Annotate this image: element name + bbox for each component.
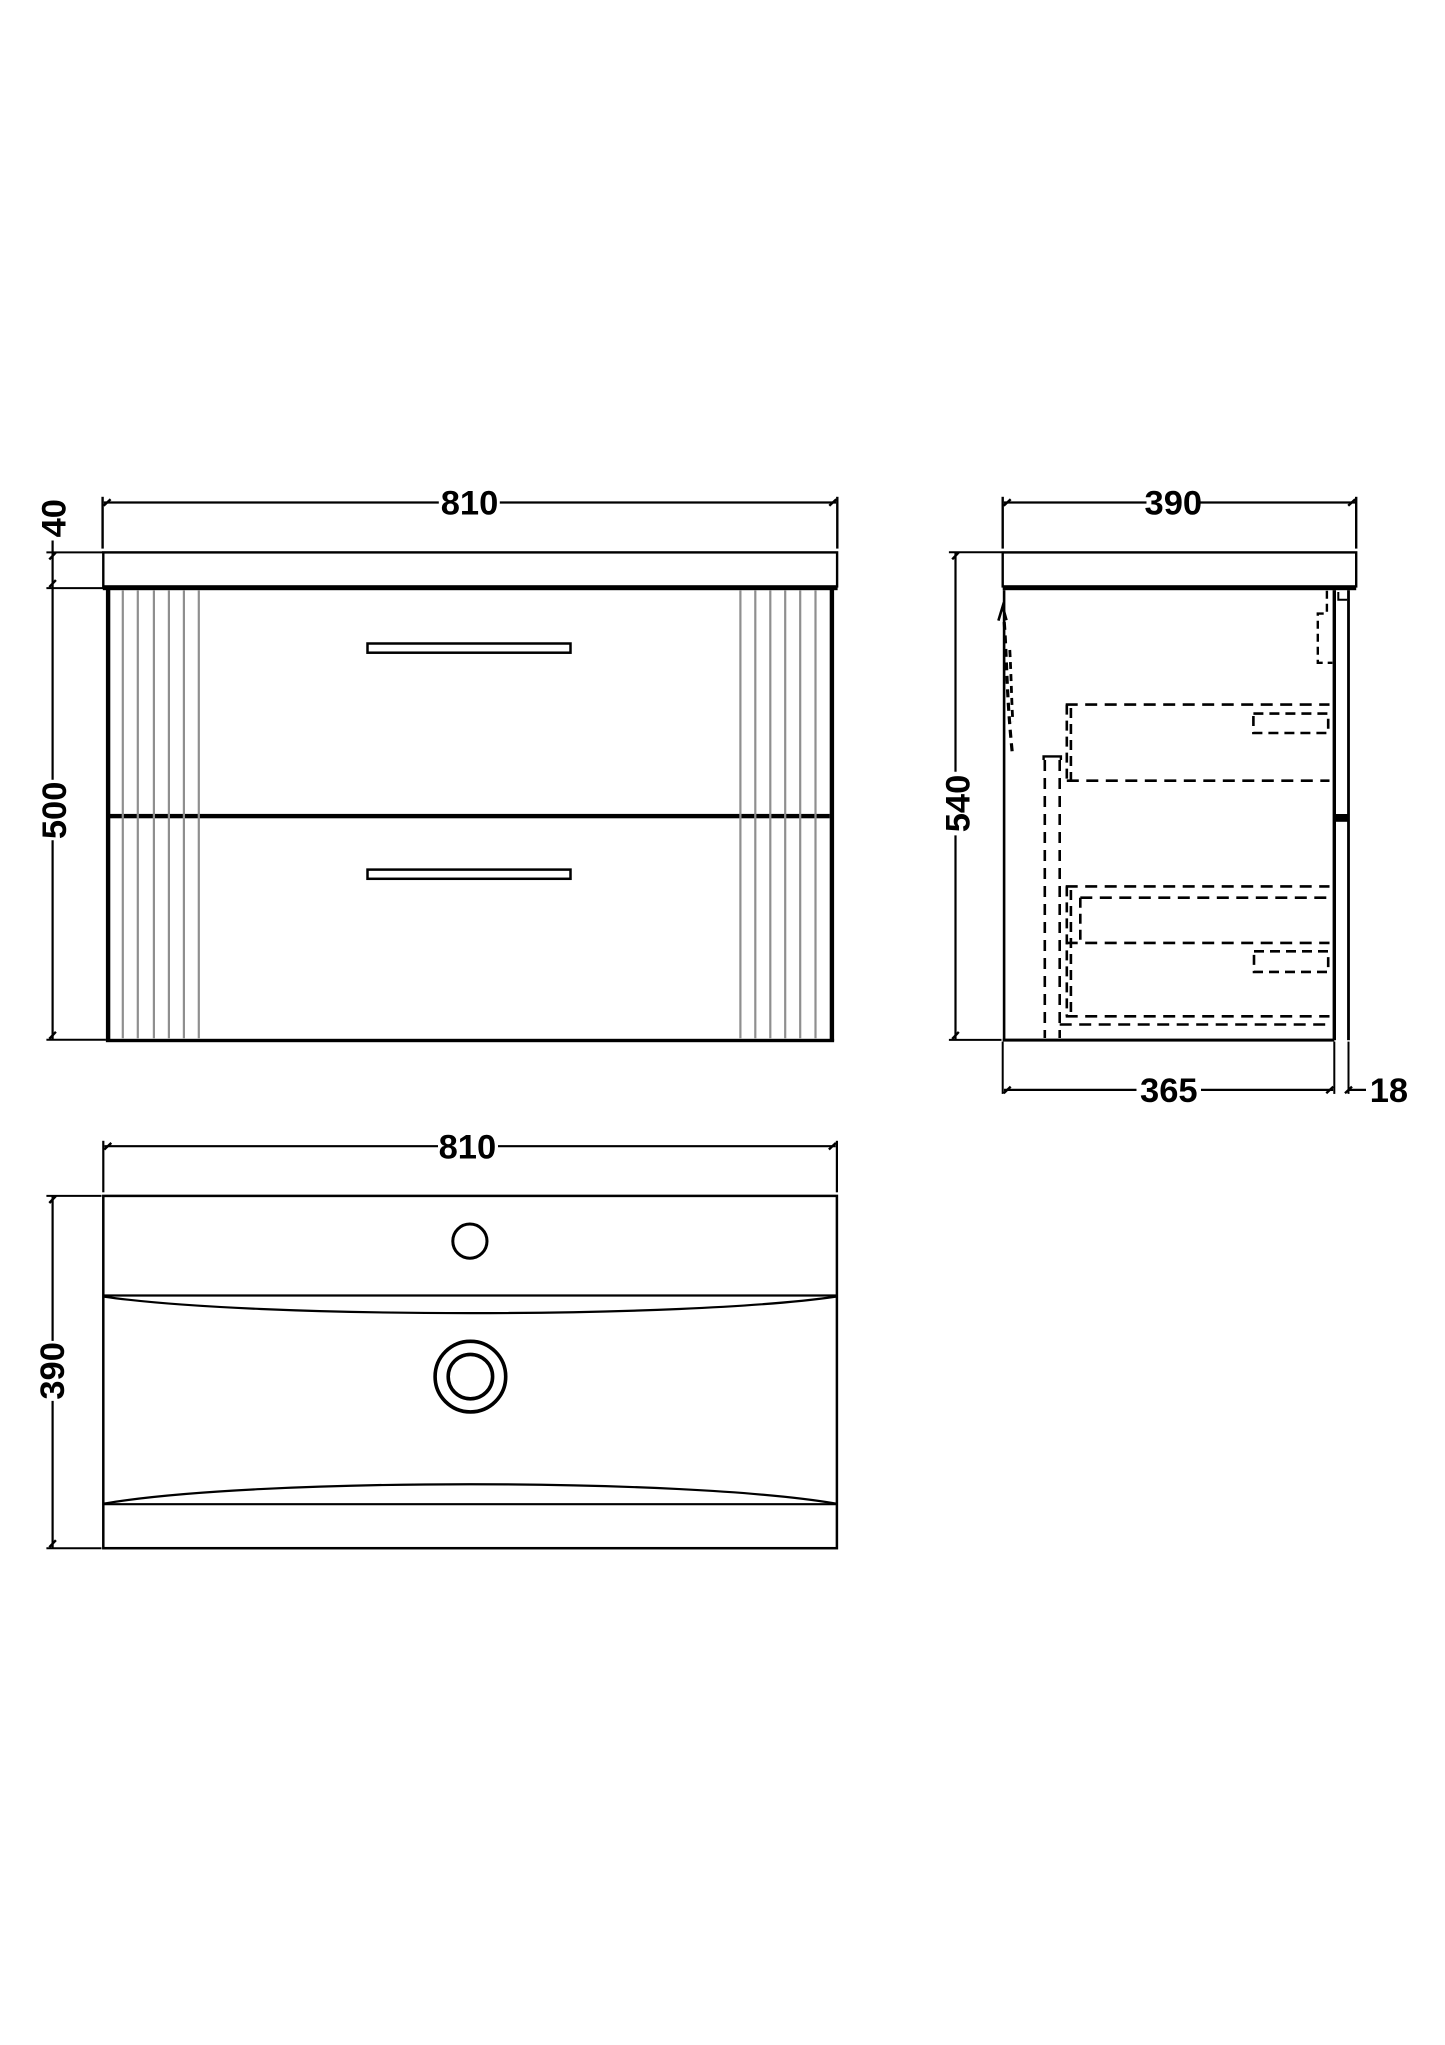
svg-text:390: 390 [1145, 485, 1203, 523]
svg-text:500: 500 [36, 782, 74, 840]
svg-text:18: 18 [1370, 1072, 1408, 1110]
svg-text:40: 40 [35, 499, 73, 537]
svg-text:390: 390 [34, 1342, 72, 1400]
svg-text:365: 365 [1140, 1072, 1198, 1110]
svg-text:540: 540 [940, 775, 978, 833]
svg-text:810: 810 [441, 485, 499, 523]
svg-text:810: 810 [439, 1128, 497, 1166]
